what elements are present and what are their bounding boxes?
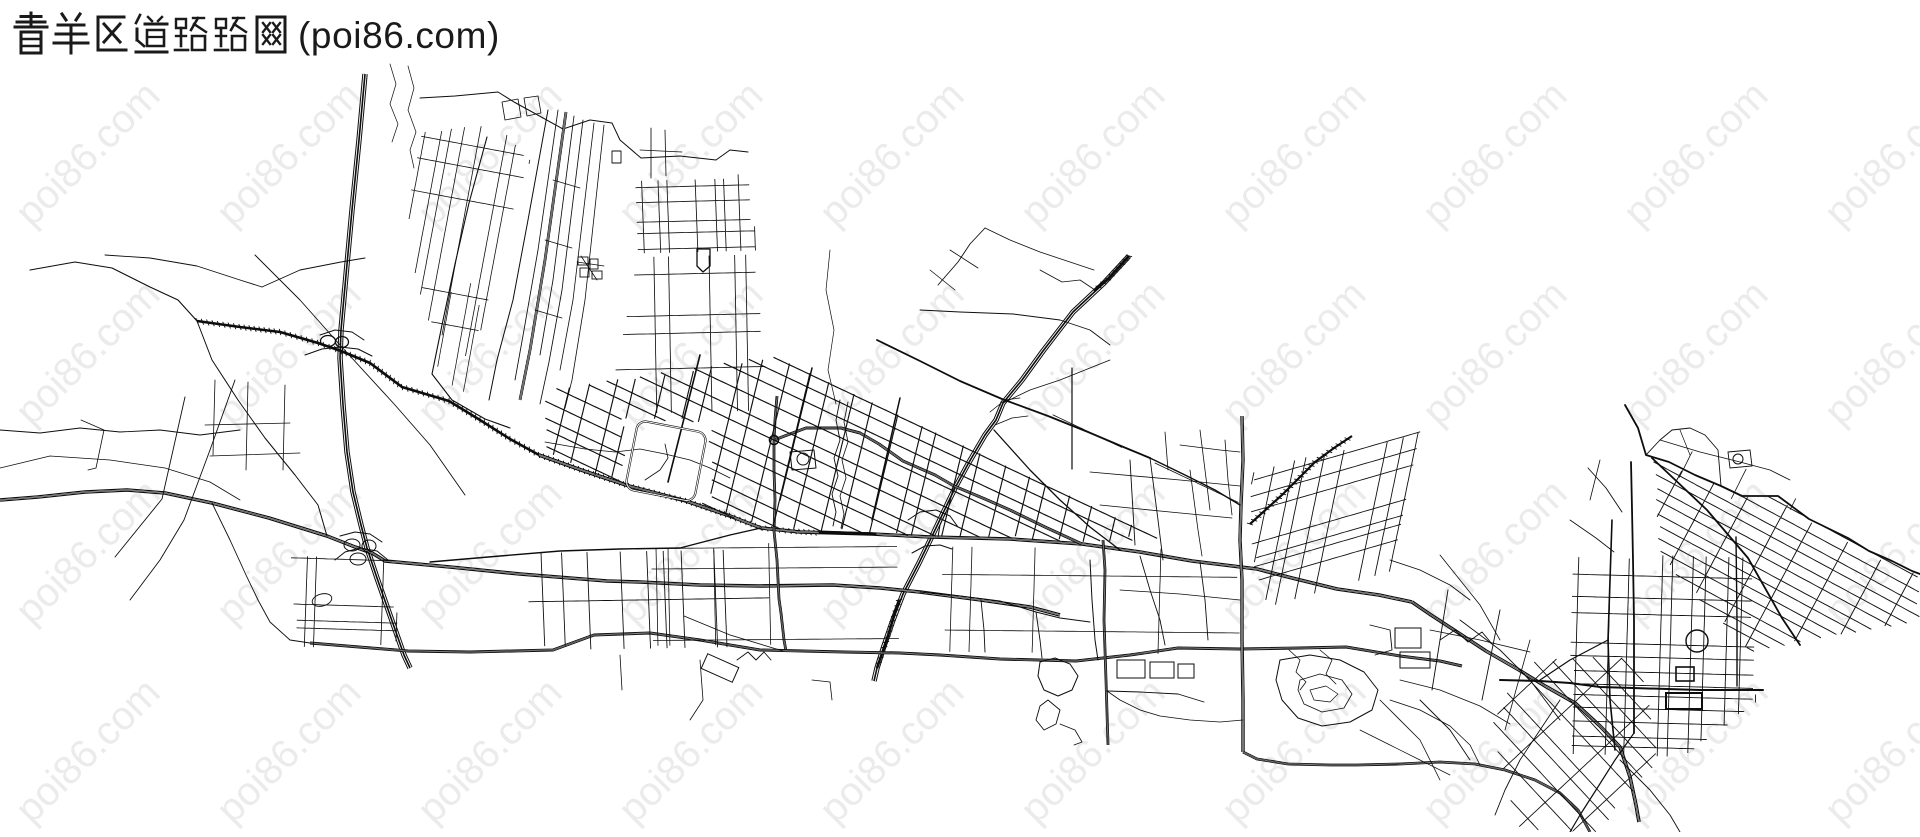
svg-text:(poi86.com): (poi86.com) (298, 15, 500, 56)
